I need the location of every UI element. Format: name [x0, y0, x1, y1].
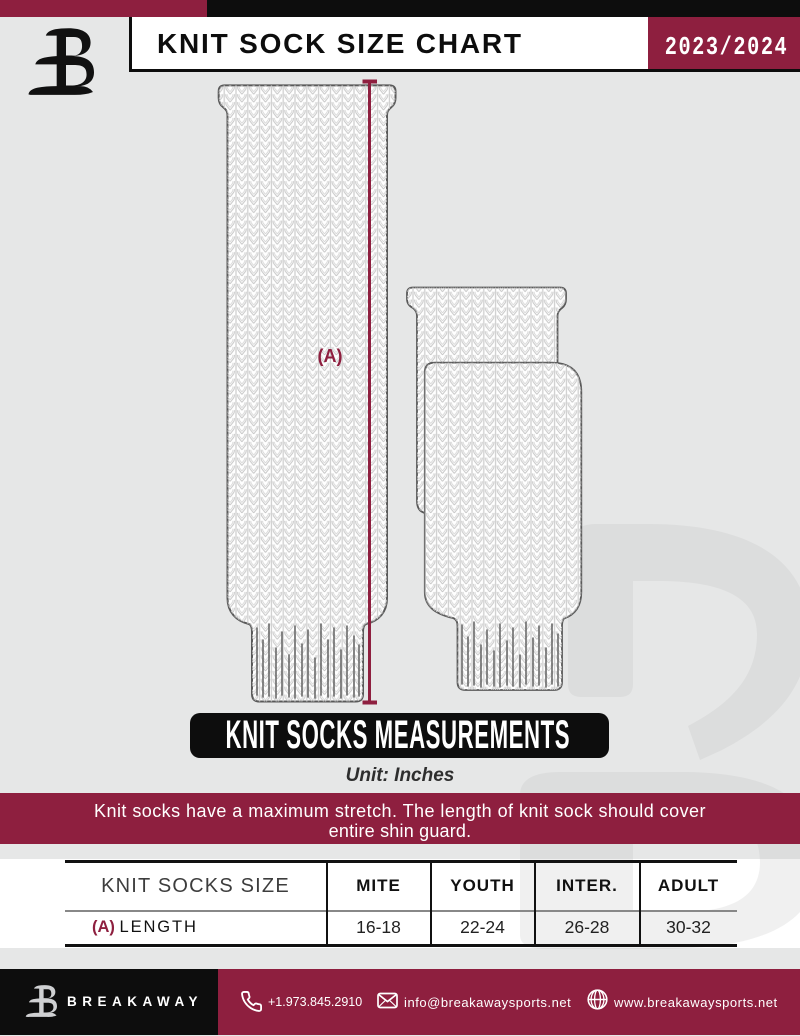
svg-text:(A): (A): [318, 346, 343, 366]
